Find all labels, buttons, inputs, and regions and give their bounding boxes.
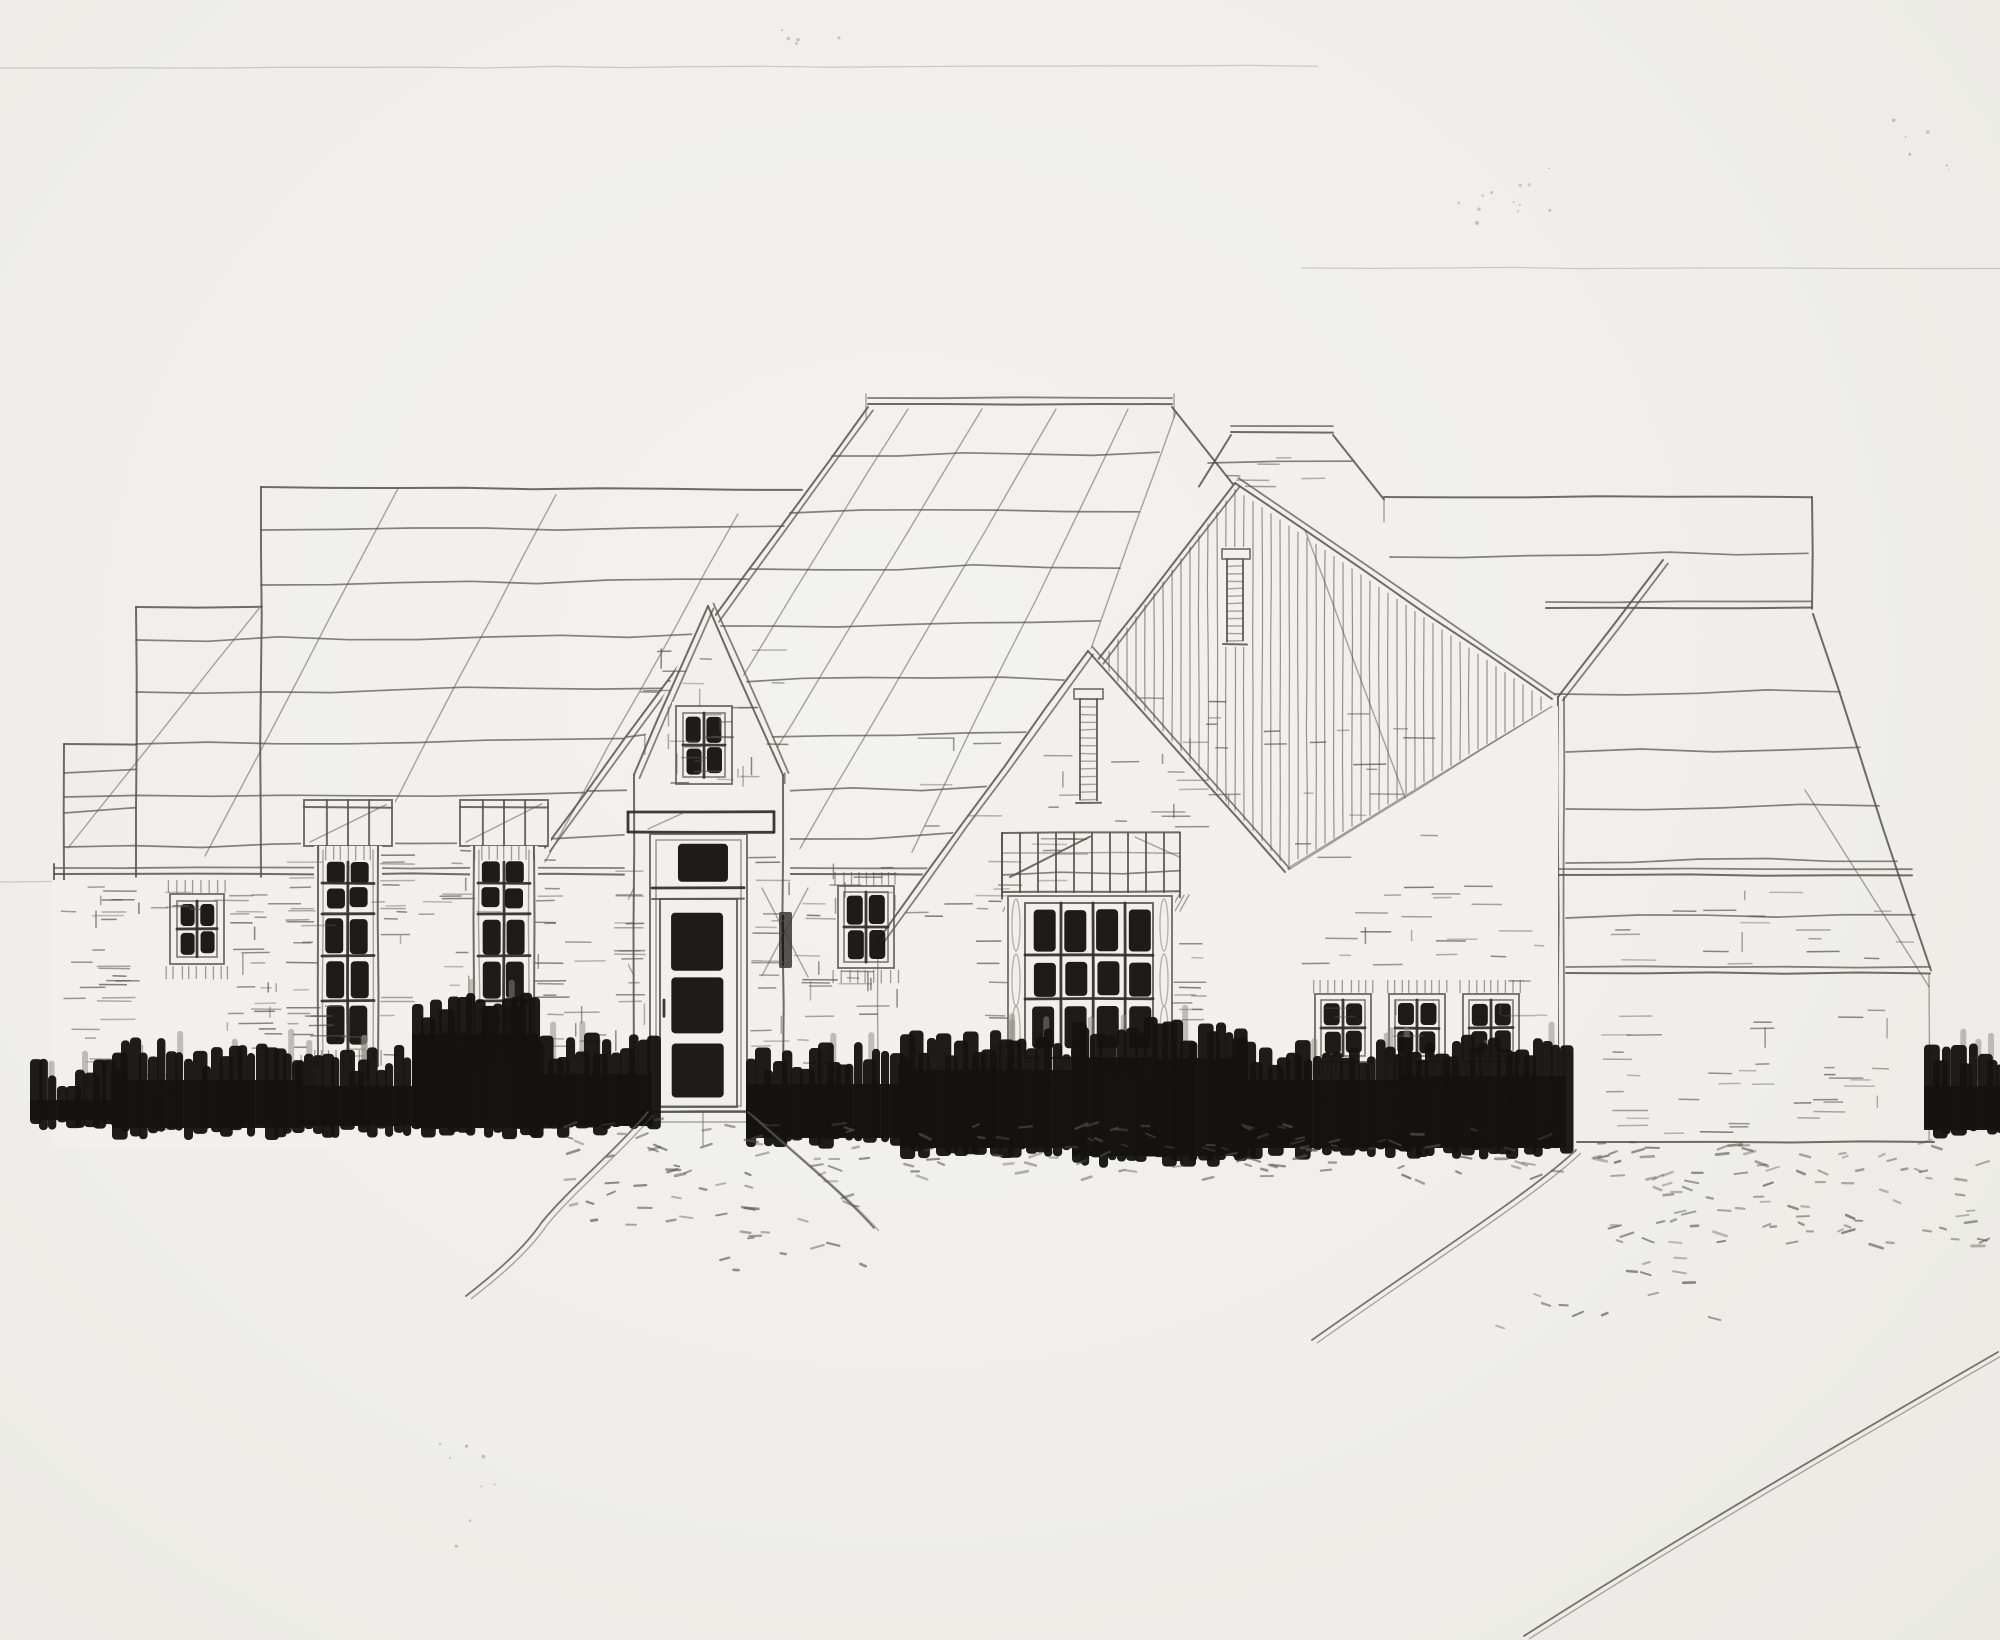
sketch-page	[0, 0, 2000, 1640]
elevation-svg	[0, 0, 2000, 1640]
